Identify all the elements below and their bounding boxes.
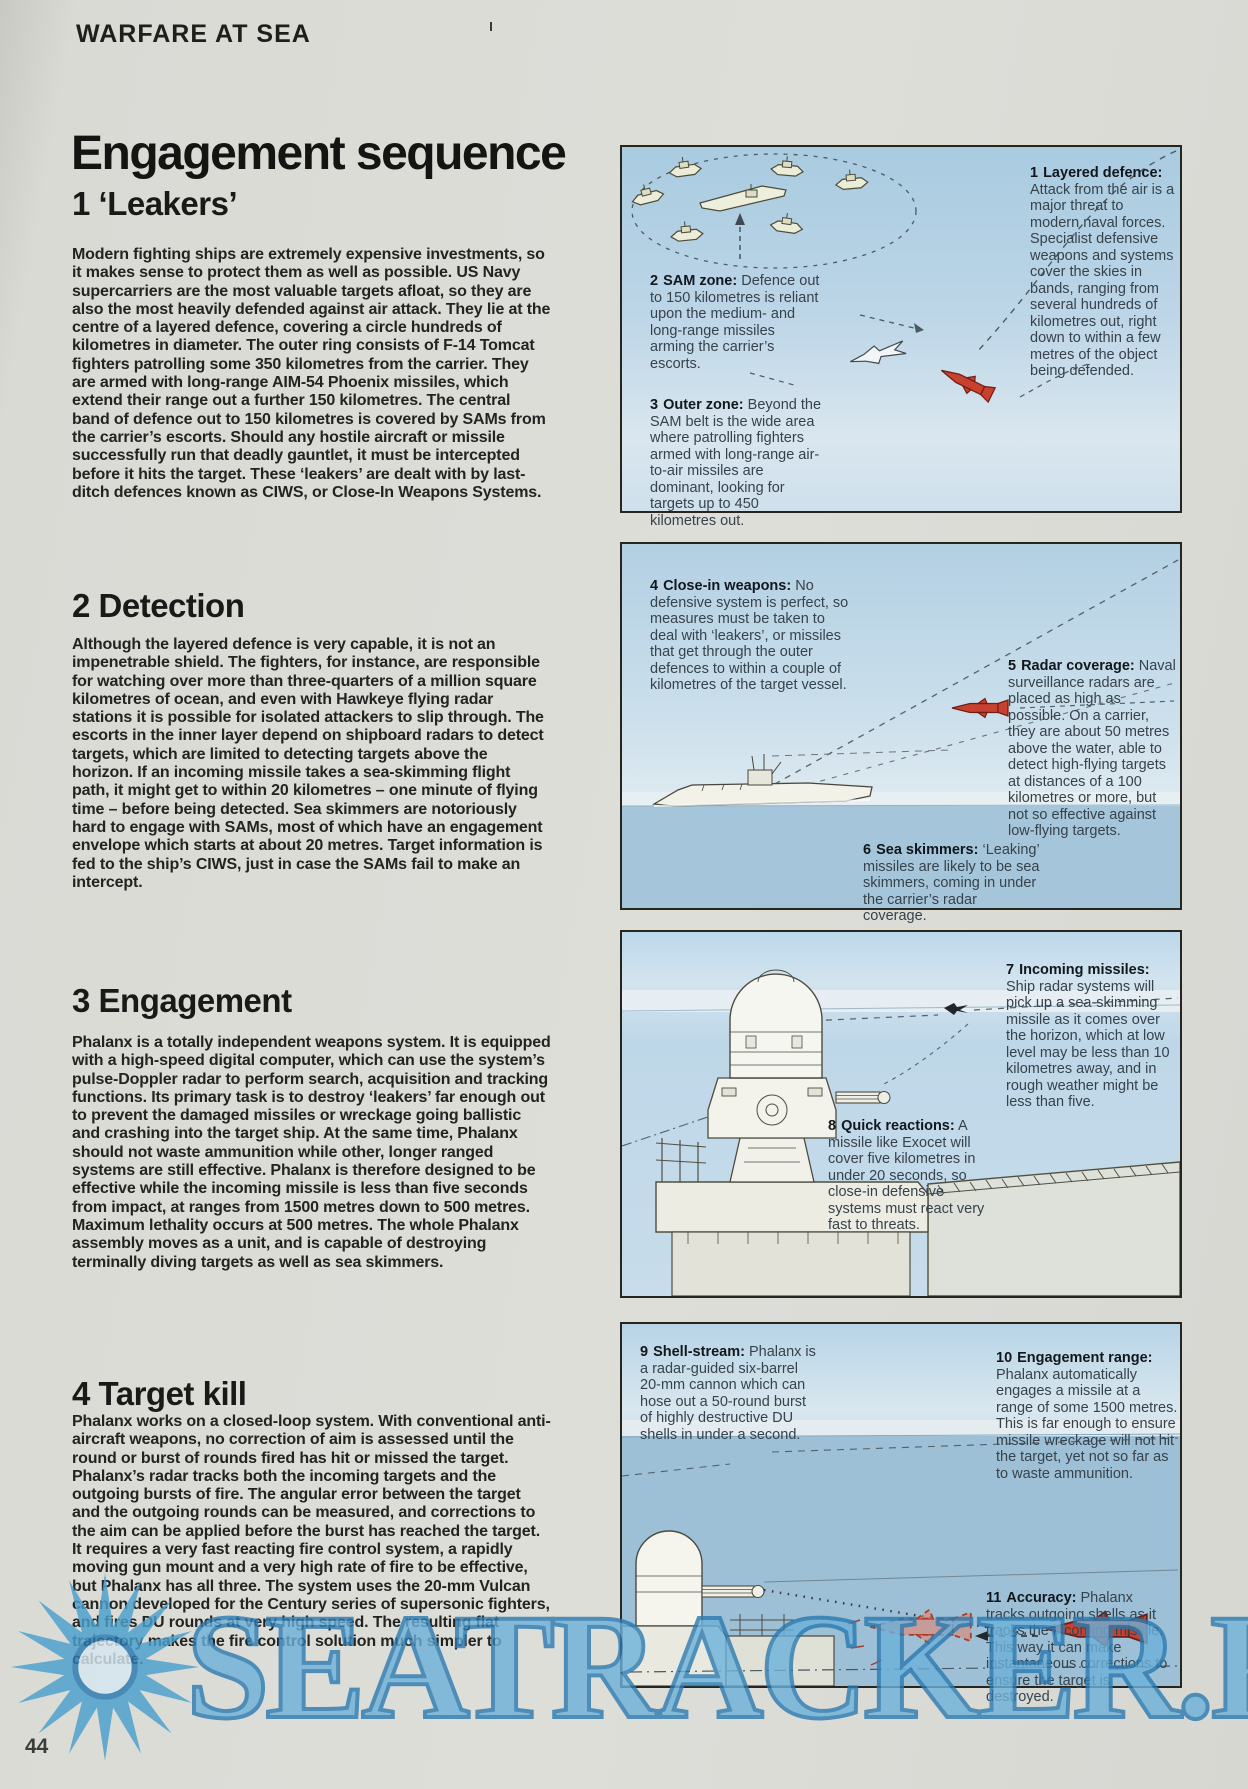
callout-lead: Shell-stream: (653, 1344, 745, 1360)
incoming-missile-icon (937, 362, 996, 404)
callout-number: 10 (996, 1350, 1017, 1366)
callout-engagement-range: 10Engagement range: Phalanx automaticall… (996, 1350, 1178, 1482)
callout-number: 1 (1030, 165, 1043, 181)
diagram-panel-detection: 4Close-in weapons: No defensive system i… (620, 542, 1182, 910)
callout-accuracy: 11Accuracy: Phalanx tracks outgoing shel… (986, 1590, 1170, 1706)
escort-ship-icon (670, 220, 704, 242)
escort-ship-icon (770, 211, 804, 234)
section-heading-leakers: 1 ‘Leakers’ (72, 185, 237, 223)
diagram-panel-engagement: 7Incoming missiles: Ship radar systems w… (620, 930, 1182, 1298)
callout-lead: Close-in weapons: (663, 578, 791, 594)
section-heading-detection: 2 Detection (72, 587, 244, 625)
callout-text: A missile like Exocet will cover five ki… (828, 1118, 984, 1233)
callout-text: Attack from the air is a major threat to… (1030, 182, 1174, 380)
section-heading-target-kill: 4 Target kill (72, 1375, 246, 1413)
registration-mark (486, 22, 495, 31)
callout-shell-stream: 9Shell-stream: Phalanx is a radar-guided… (640, 1344, 822, 1443)
callout-text: Ship radar systems will pick up a sea-sk… (1006, 979, 1170, 1111)
escort-ship-icon (629, 180, 665, 206)
magazine-page: WARFARE AT SEA Engagement sequence 1 ‘Le… (0, 0, 1248, 1789)
section-body-engagement: Phalanx is a totally independent weapons… (72, 1034, 552, 1272)
diagram-panel-layered-defence: 1Layered defence: Attack from the air is… (620, 145, 1182, 513)
arrowhead-icon (735, 213, 745, 225)
callout-text: Beyond the SAM belt is the wide area whe… (650, 397, 821, 529)
callout-close-in-weapons: 4Close-in weapons: No defensive system i… (650, 578, 850, 694)
callout-number: 6 (863, 842, 876, 858)
diagram-panel-target-kill: 9Shell-stream: Phalanx is a radar-guided… (620, 1322, 1182, 1688)
callout-text: Naval surveillance radars are placed as … (1008, 658, 1176, 839)
callout-outer-zone: 3Outer zone: Beyond the SAM belt is the … (650, 397, 826, 529)
callout-lead: Accuracy: (1006, 1590, 1076, 1606)
escort-ship-icon (771, 155, 805, 177)
escort-ship-icon (835, 168, 869, 190)
callout-number: 2 (650, 273, 663, 289)
callout-incoming-missiles: 7Incoming missiles: Ship radar systems w… (1006, 962, 1178, 1111)
section-body-leakers: Modern fighting ships are extremely expe… (72, 246, 552, 502)
callout-sea-skimmers: 6Sea skimmers: ‘Leaking’ missiles are li… (863, 842, 1043, 925)
section-kicker: WARFARE AT SEA (76, 20, 311, 49)
callout-quick-reactions: 8Quick reactions: A missile like Exocet … (828, 1118, 1000, 1234)
escort-ship-icon (667, 155, 701, 178)
callout-number: 8 (828, 1118, 841, 1134)
sea-skimmer-missile-icon (952, 699, 1008, 718)
callout-text: Phalanx automatically engages a missile … (996, 1367, 1177, 1482)
page-title: Engagement sequence (71, 126, 565, 181)
callout-number: 4 (650, 578, 663, 594)
callout-sam-zone: 2SAM zone: Defence out to 150 kilometres… (650, 273, 822, 372)
carrier-silhouette-icon (654, 754, 872, 806)
callout-lead: Incoming missiles: (1019, 962, 1150, 978)
callout-number: 3 (650, 397, 663, 413)
callout-lead: Engagement range: (1017, 1350, 1152, 1366)
callout-layered-defence: 1Layered defence: Attack from the air is… (1030, 165, 1176, 380)
callout-text: Phalanx tracks outgoing shells as it tra… (986, 1590, 1167, 1705)
callout-lead: Radar coverage: (1021, 658, 1135, 674)
arrowhead-icon (914, 323, 924, 333)
callout-number: 7 (1006, 962, 1019, 978)
callout-lead: Sea skimmers: (876, 842, 978, 858)
callout-radar-coverage: 5Radar coverage: Naval surveillance rada… (1008, 658, 1178, 840)
f14-fighter-icon (848, 339, 907, 371)
section-body-target-kill: Phalanx works on a closed-loop system. W… (72, 1413, 552, 1669)
callout-lead: SAM zone: (663, 273, 737, 289)
callout-number: 9 (640, 1344, 653, 1360)
callout-number: 5 (1008, 658, 1021, 674)
page-number: 44 (25, 1735, 48, 1759)
callout-lead: Quick reactions: (841, 1118, 955, 1134)
callout-number: 11 (986, 1590, 1006, 1606)
carrier-icon (700, 184, 786, 211)
section-heading-engagement: 3 Engagement (72, 982, 292, 1020)
callout-lead: Outer zone: (663, 397, 744, 413)
section-body-detection: Although the layered defence is very cap… (72, 636, 552, 892)
callout-text: No defensive system is perfect, so measu… (650, 578, 848, 693)
callout-lead: Layered defence: (1043, 165, 1162, 181)
